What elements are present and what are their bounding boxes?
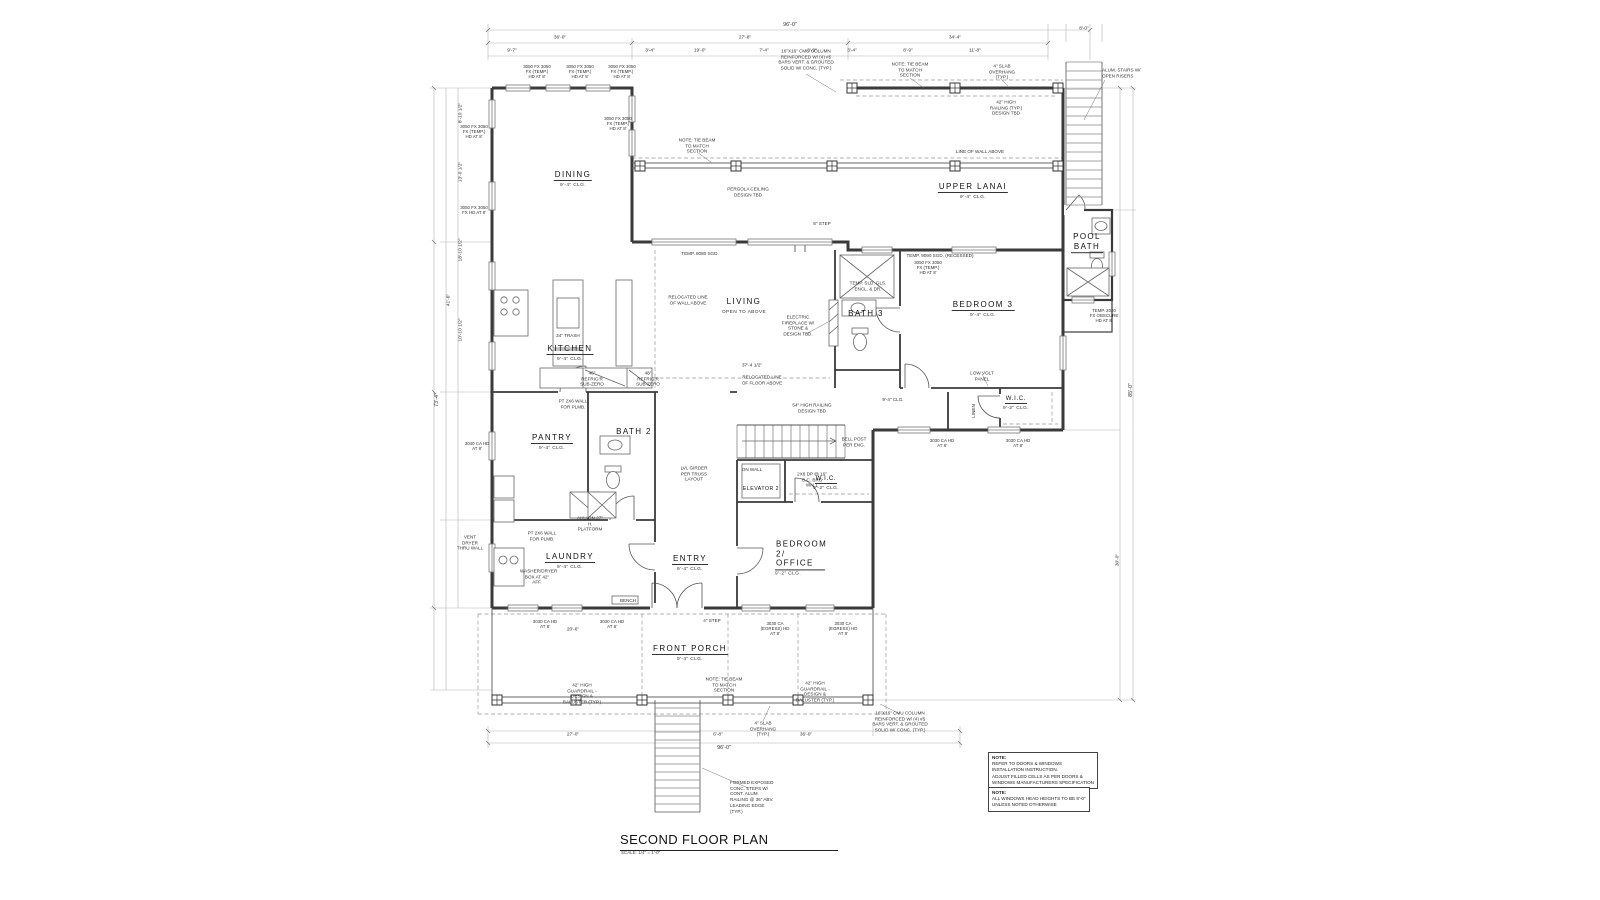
dim: 6'-8" [713, 733, 723, 738]
drawing-scale: SCALE: 1/4" = 1'-0" [621, 850, 660, 855]
dim: 41'-6" [447, 294, 452, 306]
dim: 8'-9" [807, 49, 817, 54]
callout-tie-beam: NOTE: TIE BEAM TO MATCH SECTION [891, 61, 929, 78]
column-symbol [827, 161, 837, 171]
window-symbol [862, 247, 892, 253]
window-tag: 3050 FX 3050 FX (TEMP.) HD AT 8' [565, 64, 595, 80]
window-symbol [742, 605, 770, 611]
dim: 9'-7" [507, 49, 517, 54]
callout-tie-beam: NOTE: TIE BEAM TO MATCH SECTION [678, 137, 716, 154]
callout-relocated-floor: RELOCATED LINE OF FLOOR ABOVE [739, 374, 785, 385]
exterior-stair [1066, 62, 1102, 205]
callout-ahu: AHU ON 27" H. PLATFORM [575, 515, 605, 532]
label-linen: LINEN [971, 404, 977, 418]
tall-cabinet [616, 280, 632, 366]
dim-overall-bottom: 96'-0" [717, 745, 731, 751]
callout-railing-54: 54" HIGH RAILING DESIGN TBD [791, 402, 833, 413]
window-tag: 3030 CA HD AT 8' [597, 619, 627, 629]
callout-cmu-column: 16"X16" CMU COLUMN REINFORCED W/ (4) #5 … [869, 711, 931, 734]
window-tag: 3050 FX 3050 FX (TEMP.) HD AT 8' [603, 116, 633, 132]
callout-low-volt: LOW VOLT PANEL [969, 370, 995, 381]
dim: 7'-4" [759, 49, 769, 54]
column-symbol [1053, 83, 1063, 93]
room-label-pantry: PANTRY9'-4" CLG. [531, 427, 573, 451]
room-label-elevator2: ELEVATOR 2 [742, 477, 780, 495]
window-tag: 3030 CA HD AT 8' [1003, 438, 1033, 448]
column-symbol [723, 695, 733, 705]
label-fridge: 48" REFRIG'R SUB-ZERO [635, 370, 661, 387]
window-symbol [1060, 336, 1066, 370]
toilet-icon [605, 466, 621, 489]
label-fridge: 48" REFRIG'R SUB-ZERO [579, 370, 605, 387]
note-line: ADJUST FILLED CELLS AS PER DOORS & WINDO… [992, 774, 1094, 786]
main-stair [737, 425, 845, 458]
tag-sgd-8080: TEMP. 8080 SGD. [681, 251, 718, 257]
window-symbol [489, 182, 495, 210]
drawing-title-block: SECOND FLOOR PLAN [620, 831, 838, 851]
window-symbol [988, 427, 1020, 433]
callout-pt-wall: PT 2X6 WALL FOR PLMB. [557, 398, 589, 409]
drawing-title: SECOND FLOOR PLAN [620, 832, 768, 847]
window-symbol [506, 85, 530, 91]
note-heading: NOTE: [992, 790, 1006, 795]
front-steps [655, 700, 700, 812]
callout-line-of-wall: LINE OF WALL ABOVE [956, 149, 1004, 155]
pergola-beam [632, 163, 1063, 168]
note-heading: NOTE: [992, 755, 1006, 760]
note-box-doors-windows: NOTE: REFER TO DOORS & WINDOWS INSTALLAT… [988, 752, 1098, 789]
label-hall-clg: 9'-4" CLG. [882, 397, 903, 403]
column-symbol [1053, 161, 1063, 171]
room-label-upper-lanai: UPPER LANAI9'-4" CLG. [938, 176, 1008, 200]
room-label-bedroom2-office: BEDROOM 2/ OFFICE9'-2" CLG. [775, 539, 825, 576]
column-symbol [950, 161, 960, 171]
sliding-door-symbol [748, 239, 832, 245]
dim: 20'-6" [567, 628, 579, 633]
window-tag: 3030 CA HD AT 8' [530, 619, 560, 629]
callout-conc-steps: FORMED EXPOSED CONC. STEPS W/ CONT. ALUM… [730, 780, 774, 814]
dim: 85'-0" [1128, 383, 1134, 397]
dim: 3'-4" [645, 49, 655, 54]
window-symbol [546, 85, 570, 91]
cooktop-icon [494, 290, 528, 336]
column-symbol [637, 695, 647, 705]
window-tag: TEMP. 2020 FX OBSCURE HD AT 8' [1089, 308, 1119, 324]
window-symbol [508, 605, 538, 611]
room-label-entry: ENTRY9'-4" CLG. [672, 548, 708, 572]
callout-vent-dryer: VENT DRYER THRU WALL [456, 534, 484, 551]
room-label-wic3: W.I.C.9'-2" CLG. [1003, 387, 1029, 411]
sliding-door-symbol [952, 247, 996, 253]
callout-cmu-column: 16"X16" CMU COLUMN REINFORCED W/ (4) #5 … [775, 49, 837, 72]
dim: 11'-8" [969, 49, 981, 54]
tag-sgd-9090: TEMP. 9090 SGD. (RECESSED) [906, 253, 973, 259]
dim: 10'-10 1/2" [459, 319, 464, 342]
dim: 37'-4 1/2" [742, 364, 762, 369]
column-symbol [492, 695, 502, 705]
room-label-kitchen: KITCHEN9'-4" CLG. [547, 338, 594, 362]
window-tag: 3030 CA (EGRESS) HD AT 8' [828, 621, 858, 637]
callout-step8: 8" STEP [813, 221, 830, 227]
window-symbol [806, 605, 834, 611]
dim: 18'-10 1/2" [459, 239, 464, 262]
window-tag: 3050 FX 3050 FX HD AT 8' [459, 205, 489, 215]
window-symbol [1109, 252, 1115, 276]
dim: 27'-8" [739, 36, 751, 41]
callout-guardrail: 42" HIGH GUARDRAIL - DESIGN & BALUSTER (… [792, 681, 838, 704]
window-symbol [552, 605, 582, 611]
column-symbol [950, 83, 960, 93]
note-line: REFER TO DOORS & WINDOWS INSTALLATION IN… [992, 761, 1094, 773]
window-tag: 3030 CA HD AT 8' [927, 438, 957, 448]
window-symbol [586, 85, 610, 91]
note-box-head-heights: NOTE: ALL WINDOWS HEAD HEIGHTS TO BE 8'-… [988, 787, 1090, 812]
window-symbol [1072, 297, 1094, 303]
column-symbol [635, 161, 645, 171]
fireplace-icon [829, 300, 838, 346]
tag-shower-enclosure: TEMP. SLD. GLS. ENCL. & DR. [846, 280, 890, 291]
room-label-laundry: LAUNDRY9'-4" CLG. [545, 546, 595, 570]
dim-overall-top: 96'-0" [783, 22, 797, 28]
room-label-bedroom3: BEDROOM 39'-4" CLG. [952, 294, 1015, 318]
note-line: ALL WINDOWS HEAD HEIGHTS TO BE 8'-0" UNL… [992, 796, 1086, 808]
dim: 8'-9" [903, 49, 913, 54]
range-icon [557, 298, 579, 328]
callout-alum-stairs: ALUM. STAIRS W/ OPEN RISERS [1102, 67, 1142, 78]
callout-washer-box: WASHER/DRYER BOX AT 42" AFF. [520, 568, 554, 585]
dim: 30'-0" [1116, 554, 1121, 566]
dim: 36'-0" [554, 36, 566, 41]
room-label-dining: DINING9'-4" CLG. [554, 164, 592, 188]
callout-step4: 4" STEP [703, 618, 720, 624]
window-tag: 3050 FX 3050 FX (TEMP.) HD AT 8' [459, 124, 489, 140]
callout-on-wall: ON WALL [742, 467, 763, 473]
toilet-icon [852, 328, 868, 351]
callout-bell-post: BELL POST PER ENG. [840, 436, 868, 447]
dim: 3'-4" [847, 49, 857, 54]
window-tag: 3050 FX 3050 FX (TEMP.) HD AT 8' [522, 64, 552, 80]
callout-pergola: PERGOLA CEILING DESIGN TBD [727, 186, 769, 197]
callout-pt-wall: PT 2X6 WALL FOR PLMB. [526, 530, 558, 541]
callout-guardrail: 42" HIGH GUARDRAIL - DESIGN & BALUSTER (… [559, 683, 605, 706]
dim: 8'-10 1/2" [459, 103, 464, 123]
dim: 36'-0" [800, 733, 812, 738]
window-symbol [489, 100, 495, 128]
shower-icon [1067, 268, 1109, 296]
dim: 27'-0" [567, 733, 579, 738]
dim: 13'-0 1/2" [459, 162, 464, 182]
label-bench: BENCH [620, 598, 636, 604]
callout-lvl-girder: LVL GIRDER PER TRUSS LAYOUT [677, 465, 711, 482]
window-symbol [629, 130, 635, 156]
room-label-pool-bath: POOL BATH [1071, 232, 1103, 254]
column-symbol [847, 83, 857, 93]
callout-railing-42: 42" HIGH RAILING (TYP.) DESIGN TBD [987, 99, 1025, 116]
window-tag: 3050 FX 3050 FX (TEMP.) HD AT 8' [913, 260, 943, 276]
dim: 8'-0" [1079, 27, 1089, 32]
dimension-lines [430, 24, 1136, 748]
callout-fireplace: ELECTRIC FIREPLACE W/ STONE & DESIGN TBD… [781, 315, 815, 338]
sliding-door-symbol [652, 239, 736, 245]
window-tag: 3030 CA (EGRESS) HD AT 8' [760, 621, 790, 637]
dim: 73'-4" [434, 393, 440, 407]
column-symbol [731, 161, 741, 171]
callout-slab-overhang: 4" SLAB OVERHANG (TYP.) [987, 63, 1017, 80]
callout-relocated-wall: RELOCATED LINE OF WALL ABOVE [665, 294, 711, 305]
callout-slab-overhang: 4" SLAB OVERHANG (TYP.) [748, 720, 778, 737]
room-label-bath3: BATH 3 [847, 303, 885, 321]
shower-icon [588, 492, 616, 518]
window-symbol [489, 262, 495, 290]
washer-dryer-icon [494, 476, 514, 522]
column-symbol [863, 695, 873, 705]
dim: 19'-0" [694, 49, 706, 54]
window-tag: 3050 FX 3050 FX (TEMP.) HD AT 8' [607, 64, 637, 80]
callout-tie-beam: NOTE: TIE BEAM TO MATCH SECTION [705, 676, 743, 693]
dim: 34'-4" [949, 36, 961, 41]
floor-plan-drawing [0, 0, 1600, 900]
room-label-bath2: BATH 2 [615, 421, 653, 439]
window-symbol [489, 342, 495, 370]
room-label-front-porch: FRONT PORCH9'-4" CLG. [652, 638, 728, 662]
window-symbol [898, 427, 930, 433]
floor-plan-sheet: DINING9'-4" CLG. UPPER LANAI9'-4" CLG. P… [0, 0, 1600, 900]
room-label-living: LIVINGOPEN TO ABOVE [722, 291, 766, 315]
room-label-wic2: W.I.C.9'-2" CLG. [813, 467, 839, 491]
window-tag: 3040 CA HD AT 8' [462, 441, 492, 451]
